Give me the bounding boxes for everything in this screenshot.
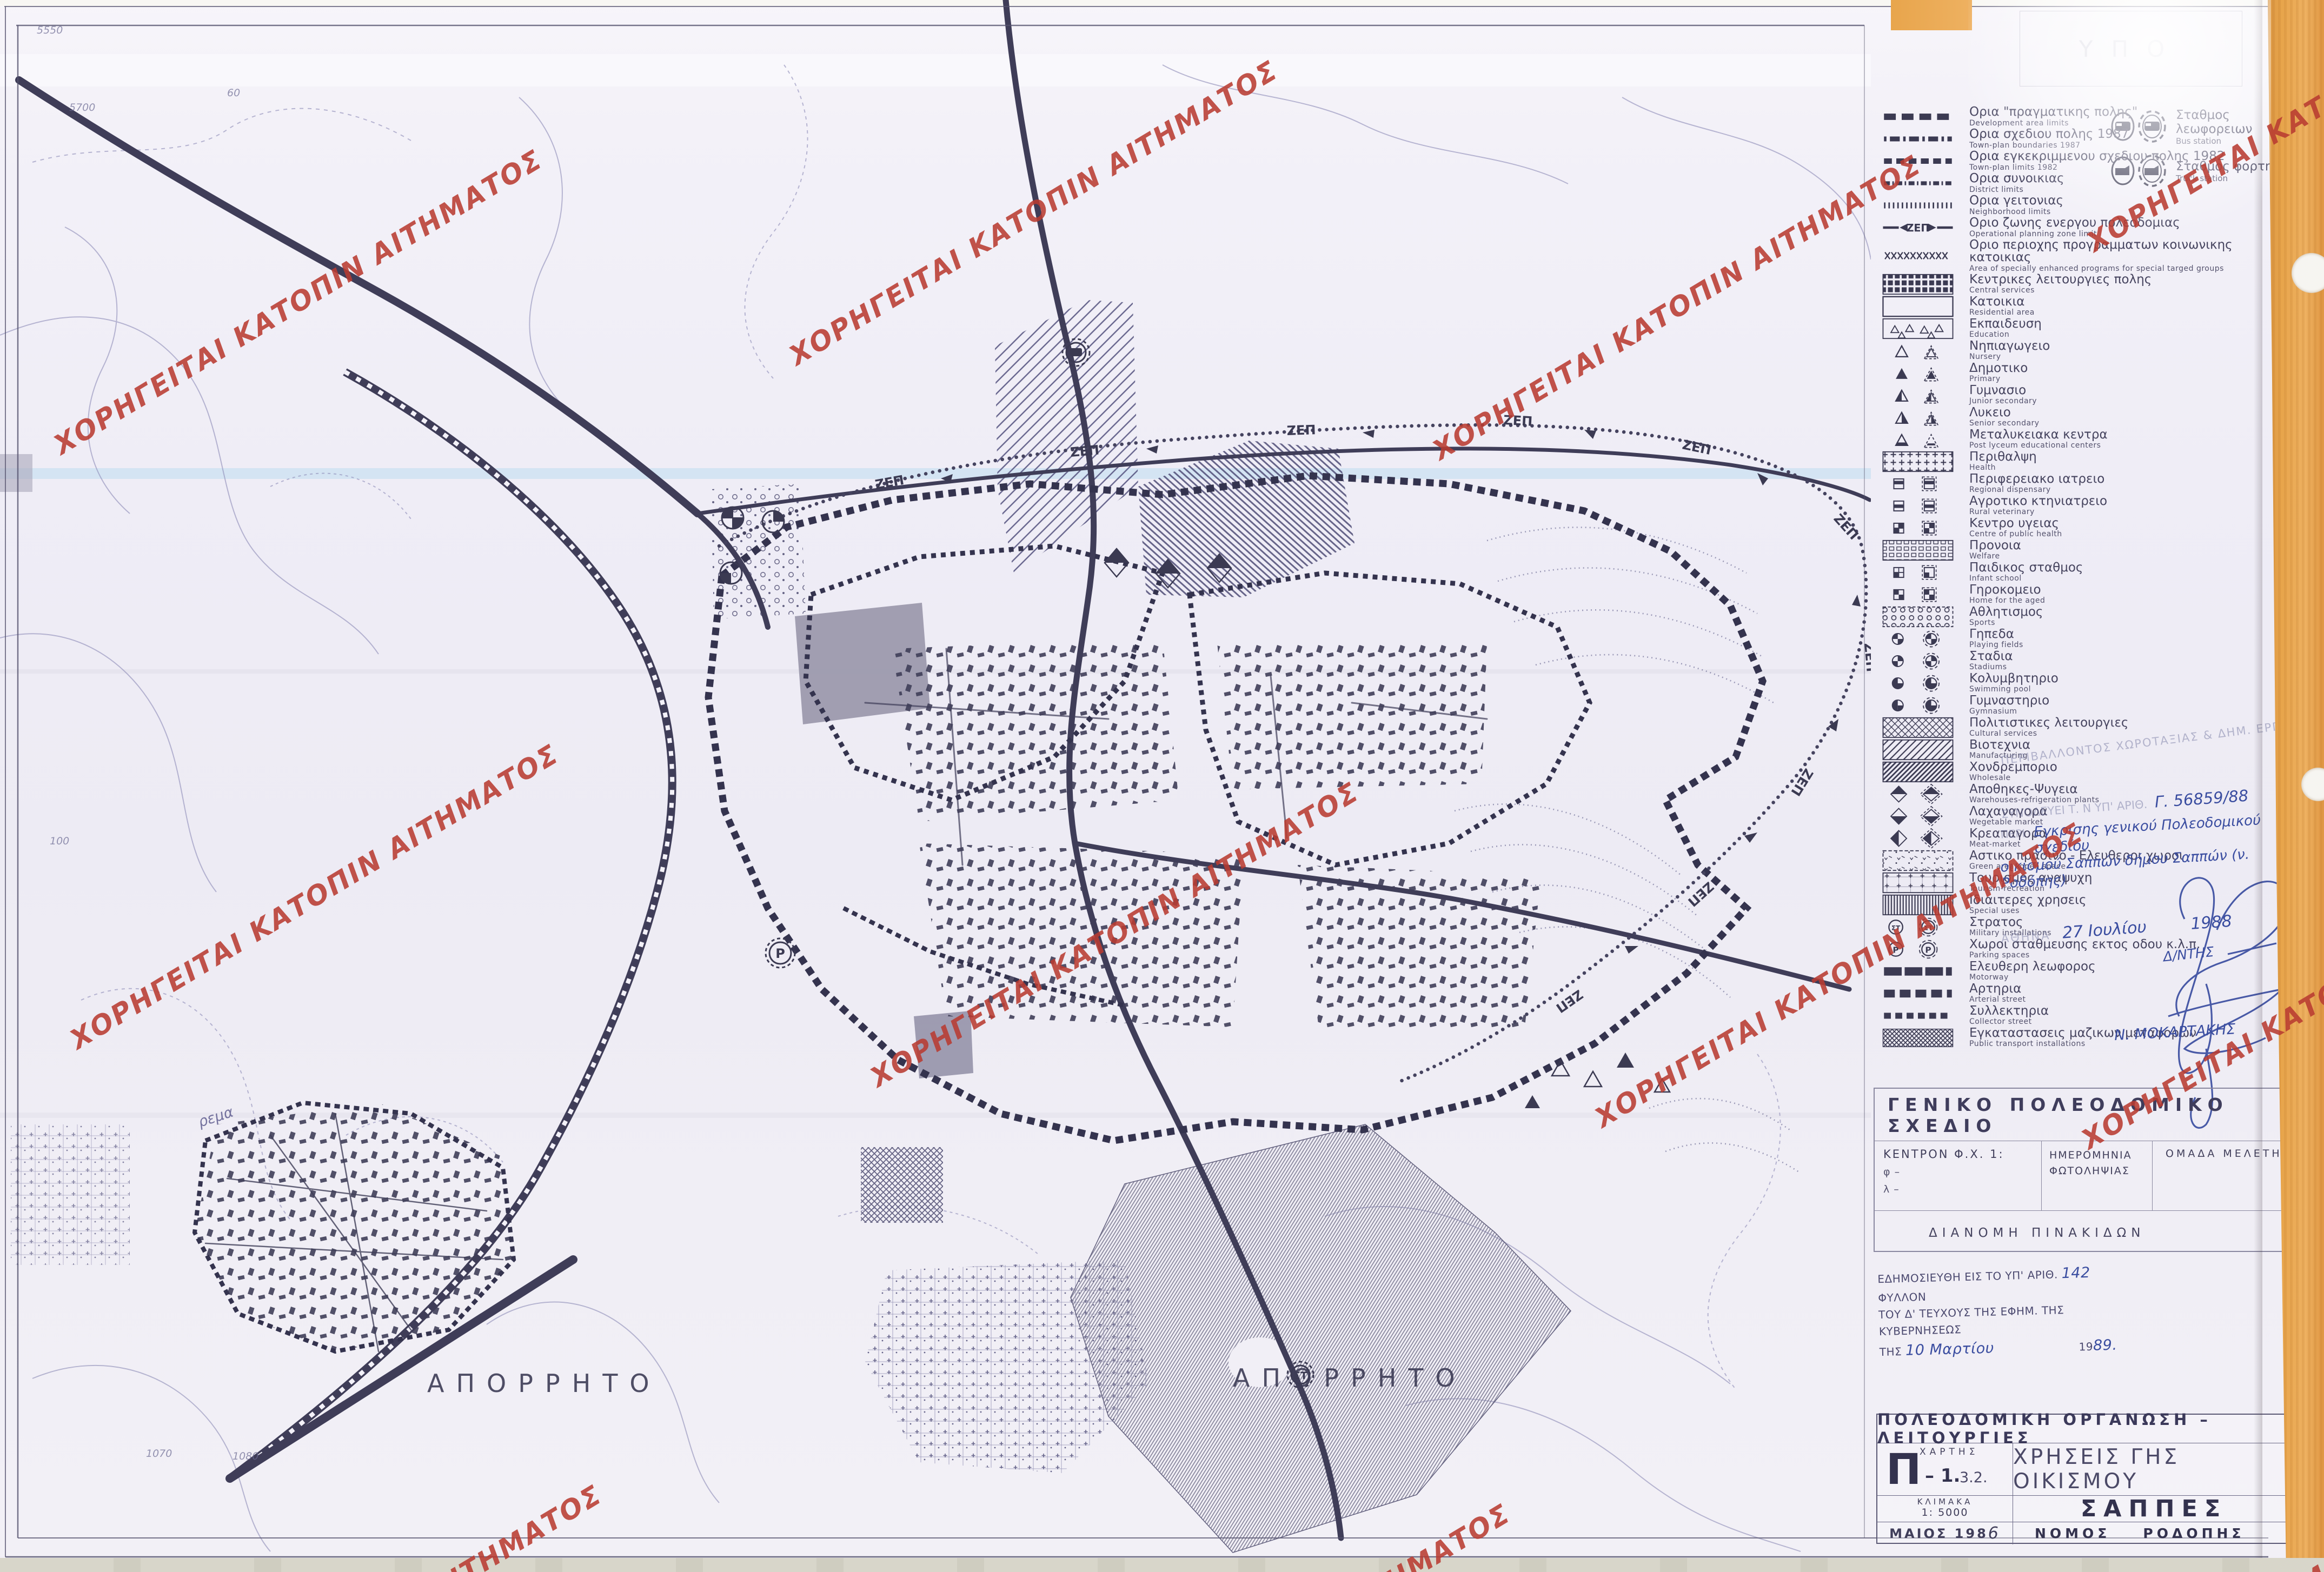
legend-symbol bbox=[1877, 717, 1958, 738]
scale-value: 1: 5000 bbox=[1877, 1507, 2013, 1518]
peri-stamp-text: ΠΕΡΙ bbox=[2000, 827, 2026, 841]
scan-wash-artifact bbox=[1968, 0, 2271, 227]
legend-symbol bbox=[1877, 495, 1958, 517]
kentron-label: ΚΕΝΤΡΟΝ Φ.Χ. 1: bbox=[1883, 1148, 2041, 1161]
scan-edge-bottom bbox=[0, 1558, 2324, 1572]
legend-label-greek: Προνοια bbox=[1969, 539, 2021, 552]
legend-item: Αγροτικο κτηνιατρειο Rural veterinary bbox=[1877, 495, 2294, 517]
legend-item: Κεντρο υγειας Centre of public health bbox=[1877, 517, 2294, 539]
legend-item: Νηπιαγωγειο Nursery bbox=[1877, 340, 2294, 362]
legend-symbol bbox=[1877, 340, 1958, 362]
legend-label-english: Swimming pool bbox=[1969, 685, 2059, 694]
protocol-number: Γ. 56859/88 bbox=[2154, 787, 2249, 811]
legend-item: Παιδικος σταθμος Infant school bbox=[1877, 562, 2294, 583]
city-name: ΣΑΠΠΕΣ bbox=[2013, 1496, 2295, 1522]
prefecture-label: ΝΟΜΟΣ bbox=[2035, 1526, 2110, 1541]
legend-item: Περιθαλψη Health bbox=[1877, 451, 2294, 472]
study-team-cell: ΟΜΑΔΑ ΜΕΛΕΤΗΣ bbox=[2153, 1141, 2295, 1210]
legend-symbol bbox=[1877, 983, 1958, 1004]
legend-item: Γηροκομειο Home for the aged bbox=[1877, 584, 2294, 605]
legend-label-greek: Περιφερειακο ιατρειο bbox=[1969, 473, 2104, 485]
legend-label-greek: Εκπαιδευση bbox=[1969, 318, 2042, 330]
kentron-cell: ΚΕΝΤΡΟΝ Φ.Χ. 1: φ – λ – bbox=[1875, 1141, 2042, 1210]
legend-label-greek: Δημοτικο bbox=[1969, 362, 2028, 375]
legend-symbol bbox=[1877, 695, 1958, 716]
legend-symbol bbox=[1877, 217, 1958, 238]
legend-symbol bbox=[1877, 739, 1958, 761]
legend-item: Προνοια Welfare bbox=[1877, 539, 2294, 561]
legend-label-english: Post lyceum educational centers bbox=[1969, 442, 2108, 450]
pub-date: 10 Μαρτίου bbox=[1905, 1340, 1994, 1358]
legend-label-greek: Κεντρικες λειτουργιες πολης bbox=[1969, 274, 2152, 286]
sheet-edge-shadow bbox=[2254, 0, 2262, 1558]
legend-label-english: Regional dispensary bbox=[1969, 486, 2104, 494]
legend-symbol bbox=[1877, 517, 1958, 539]
legend-item: Σταδια Stadiums bbox=[1877, 650, 2294, 672]
legend-item: Γυμναστηριο Gymnasium bbox=[1877, 695, 2294, 716]
legend-item: Αθλητισμος Sports bbox=[1877, 606, 2294, 628]
legend-symbol bbox=[1877, 274, 1958, 295]
legend-label-english: Central services bbox=[1969, 287, 2152, 295]
legend-label-english: Residential area bbox=[1969, 309, 2035, 317]
legend-symbol bbox=[1877, 539, 1958, 561]
legend-item: Μεταλυκειακα κεντρα Post lyceum educatio… bbox=[1877, 429, 2294, 450]
map-code-prefix: – 1. bbox=[1925, 1465, 1960, 1487]
legend-label-english: Primary bbox=[1969, 375, 2028, 383]
legend-label-greek: Λυκειο bbox=[1969, 407, 2040, 419]
legend-label-greek: Αγροτικο κτηνιατρειο bbox=[1969, 495, 2107, 508]
legend-label-greek: Γυμναστηριο bbox=[1969, 695, 2049, 707]
map-label: ΧΑΡΤΗΣ bbox=[1920, 1447, 1978, 1457]
legend-symbol bbox=[1877, 850, 1958, 871]
legend-label-english: Stadiums bbox=[1969, 663, 2013, 671]
legend-symbol bbox=[1877, 1005, 1958, 1027]
pub-line3a: ΤΗΣ bbox=[1880, 1345, 1902, 1358]
legend-symbol bbox=[1877, 783, 1958, 805]
legend-label-english: Infant school bbox=[1969, 575, 2083, 583]
photo-date-label-2: ΦΩΤΟΛΗΨΙΑΣ bbox=[2049, 1163, 2152, 1179]
scale-label: ΚΛΙΜΑΚΑ bbox=[1877, 1497, 2013, 1507]
legend-symbol bbox=[1877, 407, 1958, 428]
legend-label-greek: Αθλητισμος bbox=[1969, 606, 2043, 618]
legend-symbol bbox=[1877, 562, 1958, 583]
legend-symbol bbox=[1877, 1027, 1958, 1049]
scale-cell: ΚΛΙΜΑΚΑ 1: 5000 bbox=[1877, 1496, 2013, 1522]
legend-item: Εκπαιδευση Education bbox=[1877, 318, 2294, 339]
legend-label-english: Area of specially enhanced programs for … bbox=[1969, 265, 2294, 273]
pub-line1b: ΦΥΛΛΟΝ bbox=[1878, 1290, 1927, 1304]
phi-label: φ – bbox=[1883, 1166, 2041, 1178]
lambda-label: λ – bbox=[1883, 1183, 2041, 1195]
map-code-suffix: 3.2. bbox=[1960, 1469, 1988, 1486]
pub-year-print: 19 bbox=[2079, 1340, 2093, 1354]
legend-label-english: Cultural services bbox=[1969, 730, 2128, 738]
section-title: ΠΟΛΕΟΔΟΜΙΚΗ ΟΡΓΑΝΩΣΗ – ΛΕΙΤΟΥΡΓΙΕΣ bbox=[1877, 1415, 2295, 1443]
legend-symbol bbox=[1877, 362, 1958, 384]
legend-label-english: Health bbox=[1969, 464, 2037, 472]
legend-label-english: Centre of public health bbox=[1969, 530, 2062, 538]
legend-item: Κολυμβητηριο Swimming pool bbox=[1877, 672, 2294, 694]
legend-symbol bbox=[1877, 606, 1958, 628]
legend-item: Οριο περιοχης προγραμματων κοινωνικης κα… bbox=[1877, 239, 2294, 273]
legend-item: Γηπεδα Playing fields bbox=[1877, 628, 2294, 650]
legend-symbol bbox=[1877, 584, 1958, 605]
legend-symbol bbox=[1877, 872, 1958, 894]
legend-symbol bbox=[1877, 628, 1958, 650]
date-cell: ΜΑΙΟΣ 1986 bbox=[1877, 1522, 2013, 1544]
pub-year-hand: 89. bbox=[2093, 1336, 2117, 1354]
legend-label-greek: Πολιτιστικες λειτουργιες bbox=[1969, 717, 2128, 729]
legend-label-greek: Κατοικια bbox=[1969, 296, 2035, 308]
city-stamp-text: ΑΘΗΝΑ bbox=[2001, 929, 2051, 945]
legend-label-english: Nursery bbox=[1969, 353, 2050, 361]
date-hand: 6 bbox=[1988, 1524, 2001, 1543]
pub-number: 142 bbox=[2061, 1264, 2090, 1282]
legend-label-english: Welfare bbox=[1969, 552, 2021, 561]
legend-symbol bbox=[1877, 672, 1958, 694]
map-code-cell: ΧΑΡΤΗΣ Π – 1. 3.2. bbox=[1877, 1443, 2013, 1495]
legend-symbol bbox=[1877, 451, 1958, 472]
legend-symbol bbox=[1877, 106, 1958, 128]
legend-label-greek: Νηπιαγωγειο bbox=[1969, 340, 2050, 352]
legend-item: Κατοικια Residential area bbox=[1877, 296, 2294, 317]
legend-symbol bbox=[1877, 429, 1958, 450]
legend-label-english: Operational planning zone limit bbox=[1969, 230, 2180, 238]
publication-stamp: ΕΔΗΜΟΣΙΕΥΘΗ ΕΙΣ ΤΟ ΥΠ' ΑΡΙΘ. 142 ΦΥΛΛΟΝ … bbox=[1877, 1261, 2134, 1363]
legend-label-english: Rural veterinary bbox=[1969, 508, 2107, 516]
map-letter: Π bbox=[1886, 1449, 1921, 1491]
legend-label-greek: Γηπεδα bbox=[1969, 628, 2023, 641]
prefecture-cell: ΝΟΜΟΣ ΡΟΔΟΠΗΣ bbox=[2013, 1522, 2295, 1544]
legend-item: Γυμνασιο Junior secondary bbox=[1877, 384, 2294, 406]
plate-distribution-label: ΔΙΑΝΟΜΗ ΠΙΝΑΚΙΔΩΝ bbox=[1875, 1211, 2295, 1240]
legend-label-english: Home for the aged bbox=[1969, 597, 2045, 605]
legend-item: Περιφερειακο ιατρειο Regional dispensary bbox=[1877, 473, 2294, 495]
map-title: ΧΡΗΣΕΙΣ ΓΗΣ ΟΙΚΙΣΜΟΥ bbox=[2013, 1443, 2295, 1495]
legend-symbol bbox=[1877, 828, 1958, 849]
legend-label-greek: Βιοτεχνια bbox=[1969, 739, 2030, 751]
legend-symbol bbox=[1877, 296, 1958, 317]
legend-symbol bbox=[1877, 245, 1958, 267]
legend-symbol bbox=[1877, 961, 1958, 982]
legend-label-greek: Γηροκομειο bbox=[1969, 584, 2045, 596]
legend-symbol bbox=[1877, 128, 1958, 150]
orange-folder-top bbox=[1891, 0, 1972, 30]
legend-label-greek: Κεντρο υγειας bbox=[1969, 517, 2062, 530]
legend-symbol bbox=[1877, 384, 1958, 406]
legend-symbol bbox=[1877, 805, 1958, 827]
legend-symbol bbox=[1877, 650, 1958, 672]
date-print: ΜΑΙΟΣ 198 bbox=[1889, 1526, 1988, 1541]
pub-line1a: ΕΔΗΜΟΣΙΕΥΘΗ ΕΙΣ ΤΟ ΥΠ' ΑΡΙΘ. bbox=[1877, 1268, 2058, 1285]
legend-label-english: Gymnasium bbox=[1969, 708, 2049, 716]
legend-label-english: Junior secondary bbox=[1969, 397, 2037, 405]
legend-label-greek: Παιδικος σταθμος bbox=[1969, 562, 2083, 574]
scanned-map-sheet: ΖΕΠ ΖΕΠ ΖΕΠ ΖΕΠ ΖΕΠ ΖΕΠ ΖΕΠ ΖΕΠ ΖΕΠ ΖΕΠ bbox=[0, 0, 2324, 1572]
prefecture-name: ΡΟΔΟΠΗΣ bbox=[2143, 1526, 2245, 1541]
legend-label-english: Senior secondary bbox=[1969, 419, 2040, 428]
legend-item: Λυκειο Senior secondary bbox=[1877, 407, 2294, 428]
legend-symbol bbox=[1877, 473, 1958, 495]
title-block-upper: ΓΕΝΙΚΟ ΠΟΛΕΟΔΟΜΙΚΟ ΣΧΕΔΙΟ ΚΕΝΤΡΟΝ Φ.Χ. 1… bbox=[1874, 1088, 2296, 1252]
legend-label-greek: Σταδια bbox=[1969, 650, 2013, 663]
legend-item: Δημοτικο Primary bbox=[1877, 362, 2294, 384]
legend-label-english: Education bbox=[1969, 331, 2042, 339]
title-block-lower: ΠΟΛΕΟΔΟΜΙΚΗ ΟΡΓΑΝΩΣΗ – ΛΕΙΤΟΥΡΓΙΕΣ ΧΑΡΤΗ… bbox=[1876, 1414, 2296, 1544]
legend-label-greek: Περιθαλψη bbox=[1969, 451, 2037, 463]
legend-label-greek: Κολυμβητηριο bbox=[1969, 672, 2059, 685]
accompanies-stamp-text: ΣΥΝΟΔΕΥΕΙ Τ. Ν ΥΠ' ΑΡΙΘ. bbox=[2001, 798, 2148, 821]
legend-label-greek: Μεταλυκειακα κεντρα bbox=[1969, 429, 2108, 441]
legend-symbol bbox=[1877, 761, 1958, 783]
legend-label-greek: Γυμνασιο bbox=[1969, 384, 2037, 397]
legend-symbol bbox=[1877, 318, 1958, 339]
legend-label-english: Playing fields bbox=[1969, 641, 2023, 649]
legend-label-greek: Οριο περιοχης προγραμματων κοινωνικης κα… bbox=[1969, 239, 2294, 264]
legend-label-english: Sports bbox=[1969, 619, 2043, 627]
legend-item: Κεντρικες λειτουργιες πολης Central serv… bbox=[1877, 274, 2294, 295]
